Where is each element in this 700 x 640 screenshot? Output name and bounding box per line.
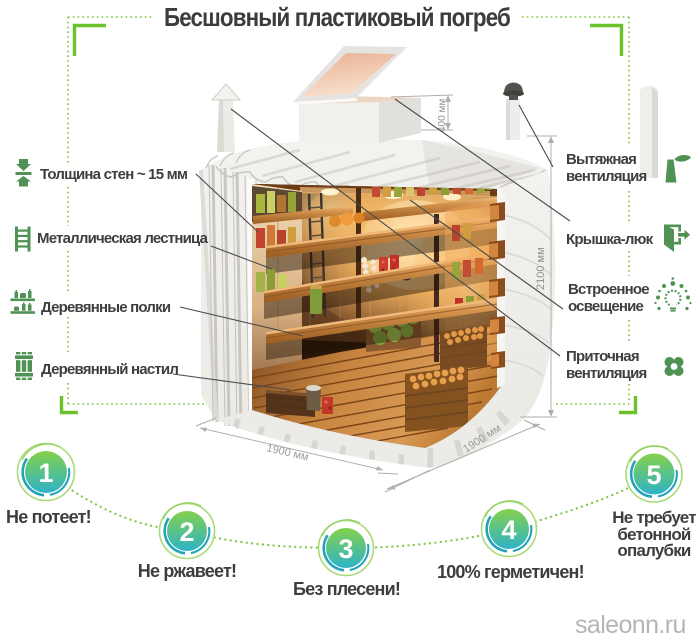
- svg-text:1: 1: [38, 458, 53, 488]
- svg-text:3: 3: [338, 534, 353, 564]
- svg-text:4: 4: [501, 515, 516, 545]
- svg-text:2100 мм: 2100 мм: [535, 247, 547, 290]
- svg-text:2: 2: [179, 517, 194, 547]
- svg-text:5: 5: [646, 460, 661, 490]
- svg-text:400 мм: 400 мм: [437, 99, 448, 132]
